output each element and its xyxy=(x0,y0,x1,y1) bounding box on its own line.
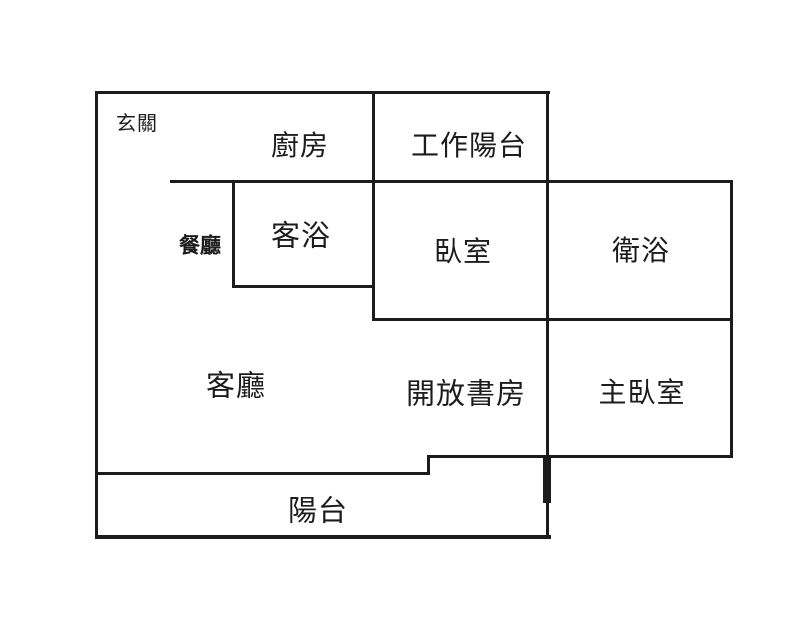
wall-guest-bath-bottom xyxy=(232,285,375,288)
wall-exterior-top xyxy=(95,91,550,94)
room-label-dining-room: 餐廳 xyxy=(179,236,221,257)
wall-bedroom-left xyxy=(372,91,375,321)
wall-balcony-top xyxy=(95,472,430,475)
wall-exterior-bottom xyxy=(95,535,551,539)
room-label-kitchen: 廚房 xyxy=(271,132,329,160)
room-label-bathroom: 衛浴 xyxy=(612,237,670,265)
wall-balcony-window xyxy=(543,457,551,503)
room-label-master-bedroom: 主臥室 xyxy=(598,379,685,407)
room-label-open-study: 開放書房 xyxy=(406,381,526,410)
room-label-balcony: 陽台 xyxy=(288,498,348,527)
wall-guest-bath-left xyxy=(232,180,235,288)
floorplan-canvas: 玄關 廚房 工作陽台 餐廳 客浴 臥室 衛浴 客廳 開放書房 主臥室 陽台 xyxy=(0,0,800,640)
wall-hall-horizontal xyxy=(170,180,733,183)
room-label-guest-bathroom: 客浴 xyxy=(271,223,331,252)
room-label-living-room: 客廳 xyxy=(206,373,266,402)
wall-master-bottom xyxy=(427,455,733,458)
room-label-entryway: 玄關 xyxy=(116,114,158,134)
room-label-bedroom: 臥室 xyxy=(434,238,492,266)
room-label-work-balcony: 工作陽台 xyxy=(411,132,527,160)
wall-bedroom-bottom xyxy=(372,318,733,321)
